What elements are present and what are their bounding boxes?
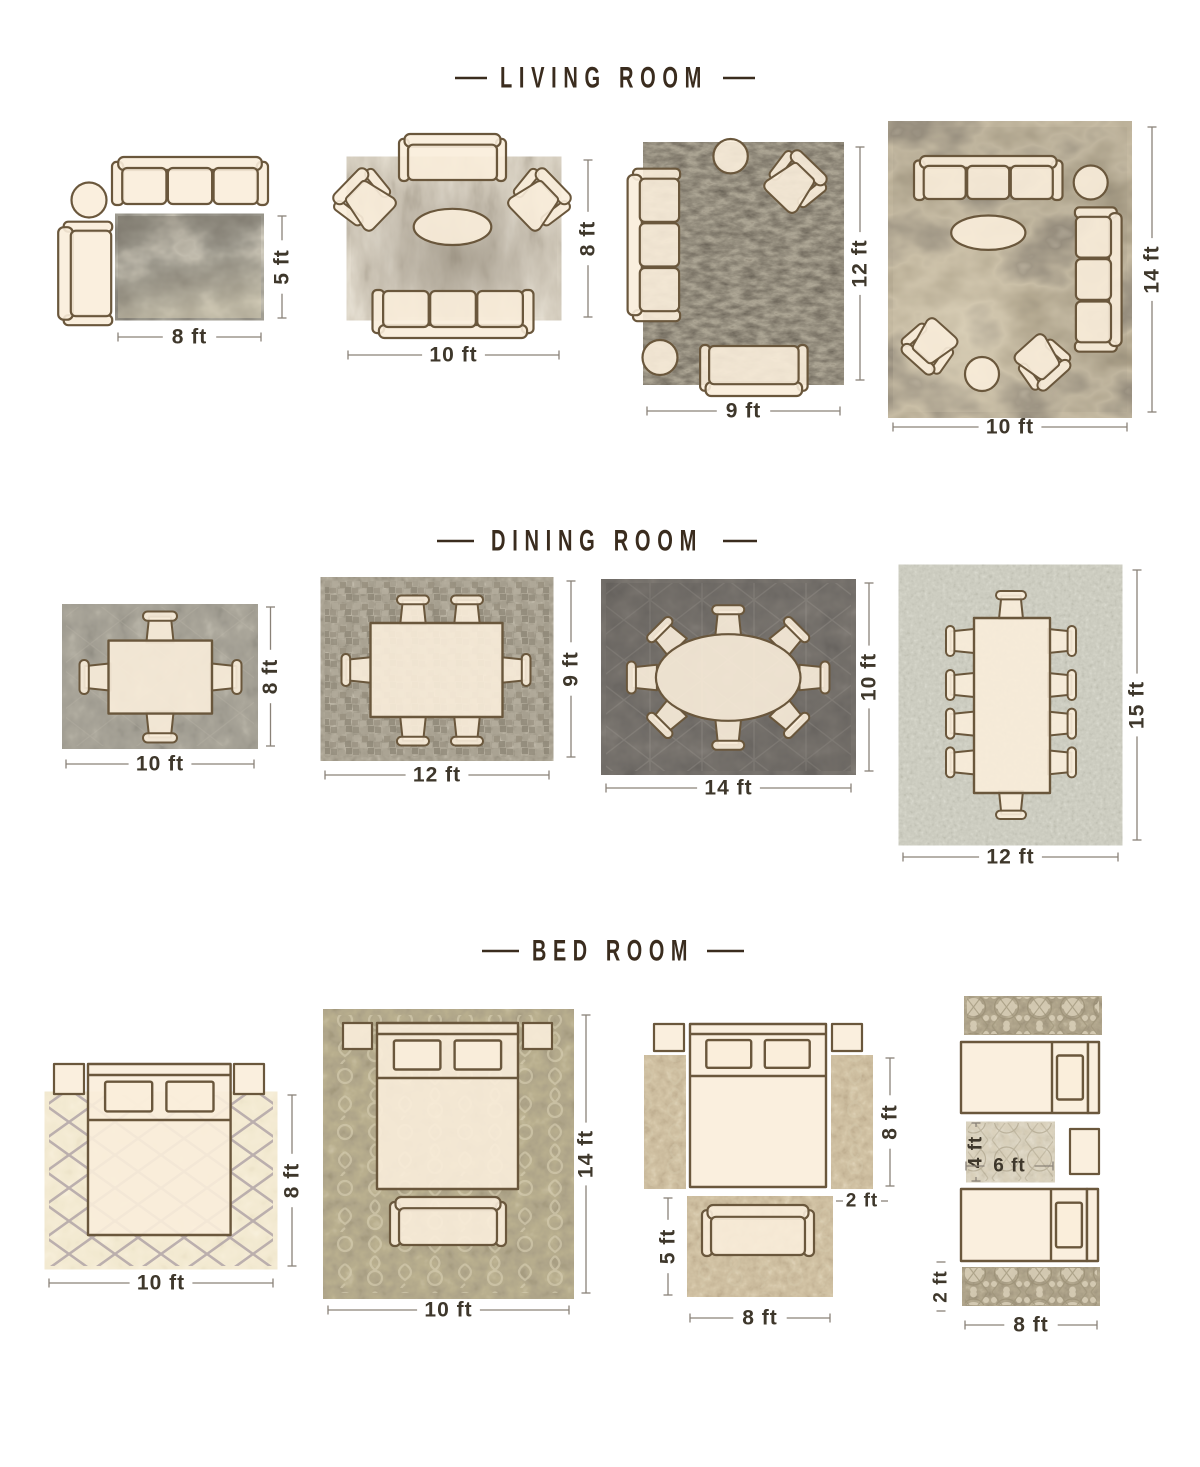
svg-text:8 ft: 8 ft xyxy=(281,1163,304,1199)
svg-text:8 ft: 8 ft xyxy=(259,659,282,695)
svg-text:5 ft: 5 ft xyxy=(271,249,294,285)
svg-text:15 ft: 15 ft xyxy=(1126,681,1149,729)
svg-text:LIVING ROOM: LIVING ROOM xyxy=(500,62,708,95)
svg-text:10 ft: 10 ft xyxy=(858,653,881,701)
svg-text:10 ft: 10 ft xyxy=(429,344,477,367)
svg-text:12 ft: 12 ft xyxy=(849,239,872,287)
svg-text:9 ft: 9 ft xyxy=(560,651,583,687)
svg-text:12 ft: 12 ft xyxy=(986,846,1034,869)
svg-text:10 ft: 10 ft xyxy=(986,416,1034,439)
svg-text:2 ft: 2 ft xyxy=(931,1270,952,1303)
svg-text:10 ft: 10 ft xyxy=(424,1299,472,1322)
svg-text:4 ft: 4 ft xyxy=(966,1136,987,1169)
svg-text:8 ft: 8 ft xyxy=(172,326,208,349)
svg-text:8 ft: 8 ft xyxy=(1013,1314,1049,1337)
svg-text:12 ft: 12 ft xyxy=(413,764,461,787)
svg-text:8 ft: 8 ft xyxy=(879,1104,902,1140)
svg-text:5 ft: 5 ft xyxy=(657,1229,680,1265)
svg-text:6 ft: 6 ft xyxy=(993,1156,1026,1177)
svg-text:8 ft: 8 ft xyxy=(742,1307,778,1330)
svg-text:14 ft: 14 ft xyxy=(1141,245,1164,293)
svg-text:14 ft: 14 ft xyxy=(704,777,752,800)
svg-text:8 ft: 8 ft xyxy=(577,221,600,257)
svg-text:BED ROOM: BED ROOM xyxy=(532,935,694,968)
svg-text:14 ft: 14 ft xyxy=(575,1130,598,1178)
svg-text:10 ft: 10 ft xyxy=(137,1272,185,1295)
svg-text:10 ft: 10 ft xyxy=(136,753,184,776)
svg-text:2 ft: 2 ft xyxy=(846,1191,879,1212)
svg-text:DINING ROOM: DINING ROOM xyxy=(491,525,703,558)
svg-text:9 ft: 9 ft xyxy=(726,400,762,423)
